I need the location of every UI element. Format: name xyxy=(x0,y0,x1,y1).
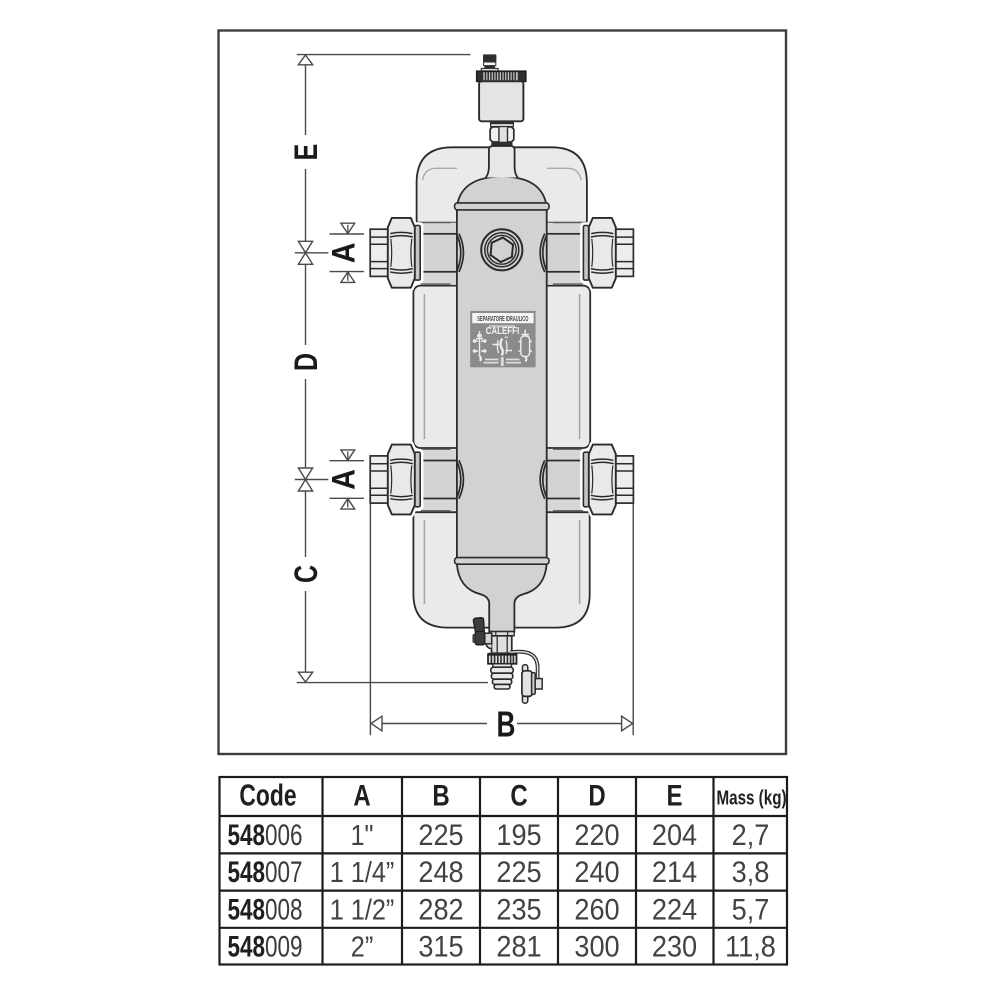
svg-text:2,7: 2,7 xyxy=(732,819,770,852)
svg-text:1 1/4”: 1 1/4” xyxy=(330,856,394,889)
svg-text:E: E xyxy=(666,778,682,812)
svg-text:281: 281 xyxy=(496,931,541,964)
svg-text:A: A xyxy=(353,778,370,812)
svg-text:548009: 548009 xyxy=(227,929,302,963)
svg-text:Mass (kg): Mass (kg) xyxy=(716,786,786,809)
svg-text:11,8: 11,8 xyxy=(725,931,776,964)
svg-text:300: 300 xyxy=(574,931,619,964)
svg-text:3,8: 3,8 xyxy=(732,856,770,889)
svg-text:282: 282 xyxy=(418,893,463,926)
svg-text:1 1/2”: 1 1/2” xyxy=(330,893,394,926)
svg-text:230: 230 xyxy=(652,931,697,964)
svg-text:315: 315 xyxy=(418,931,463,964)
svg-text:1": 1" xyxy=(351,818,374,851)
svg-text:235: 235 xyxy=(496,893,541,926)
svg-text:220: 220 xyxy=(574,819,619,852)
svg-text:5,7: 5,7 xyxy=(732,893,770,926)
svg-text:240: 240 xyxy=(574,856,619,889)
svg-text:260: 260 xyxy=(574,893,619,926)
svg-text:548006: 548006 xyxy=(227,818,302,852)
svg-text:Code: Code xyxy=(239,778,296,812)
svg-text:D: D xyxy=(588,778,605,812)
svg-text:548007: 548007 xyxy=(227,855,302,889)
svg-text:548008: 548008 xyxy=(227,892,302,926)
svg-text:195: 195 xyxy=(496,819,541,852)
svg-text:248: 248 xyxy=(418,856,463,889)
svg-text:C: C xyxy=(510,778,527,812)
svg-text:225: 225 xyxy=(496,856,541,889)
svg-text:B: B xyxy=(432,778,449,812)
svg-text:224: 224 xyxy=(652,893,697,926)
svg-text:204: 204 xyxy=(652,819,697,852)
svg-text:214: 214 xyxy=(652,856,697,889)
svg-text:225: 225 xyxy=(418,819,463,852)
svg-text:2”: 2” xyxy=(351,930,373,963)
